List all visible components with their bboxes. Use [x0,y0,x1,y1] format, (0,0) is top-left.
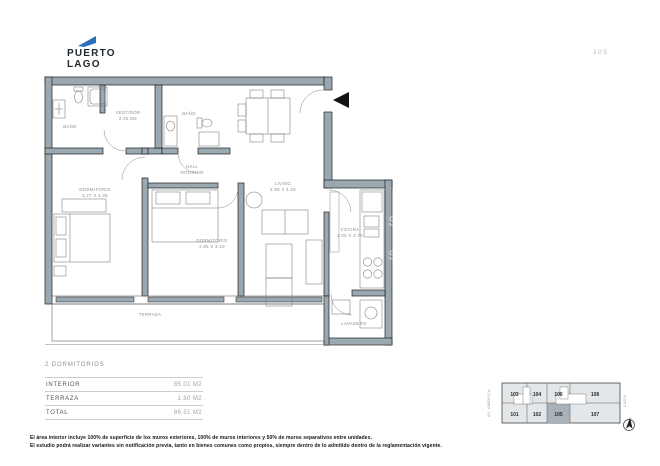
room-label-banio-1: BAÑO [63,124,77,129]
room-detail-dormitorio-1: 3.27 X 4.45 [82,193,108,198]
summary-value: 1.50 M2 [178,396,202,402]
summary-value: 86.51 M2 [174,410,202,416]
room-detail-living: 2.90 X 4.25 [270,187,296,192]
dining-table-icon [238,90,290,142]
svg-text:S: S [388,213,398,230]
room-label-hall: HALL [186,164,198,169]
keyplan-unit-106: 106 [554,392,563,398]
walls [45,77,392,345]
room-detail-hall: INTERIOR [180,170,203,175]
bed-icon-dorm2 [152,190,218,242]
door-swings [104,90,352,315]
room-label-terraza: TERRAZA [139,312,162,317]
summary-label: TOTAL [46,410,68,416]
area-summary: 2 DORMITORIOS INTERIOR 85.01 M2 TERRAZA … [45,362,203,420]
disclaimer-line1: El área interior incluye 100% de superfi… [30,434,642,442]
disclaimer: El área interior incluye 100% de superfi… [30,434,642,450]
thin-outlines [45,296,392,345]
furniture [53,87,384,328]
room-label-dormitorio-2: DORMITORIO [196,238,228,243]
keyplan-unit-105: 105 [554,412,563,418]
summary-label: TERRAZA [46,396,79,402]
keyplan-unit-102: 102 [533,412,542,418]
room-label-cocina: COCINA [341,227,360,232]
key-plan: 103 104 106 108 101 102 105 107 AV. AMÉR… [486,383,635,431]
toilet-icon [197,118,202,128]
summary-row-interior: INTERIOR 85.01 M2 [45,377,203,391]
summary-row-total: TOTAL 86.51 M2 [45,405,203,420]
keyplan-unit-101: 101 [510,412,519,418]
room-label-banio-2: BAÑO [182,111,196,116]
north-arrow-icon [624,418,635,431]
bed-icon-dorm1 [54,199,110,276]
room-detail-cocina: 2.00 X 3.70 [337,233,363,238]
room-detail-vestidor: 2.45 M2 [119,116,137,121]
summary-title: 2 DORMITORIOS [45,362,203,368]
summary-value: 85.01 M2 [174,382,202,388]
street-label-right: LAGO [623,395,627,407]
keyplan-unit-107: 107 [591,412,600,418]
room-label-living: LIVING [275,181,291,186]
room-detail-dormitorio-2: 2.85 X 3.10 [199,244,225,249]
keyplan-unit-103: 103 [510,392,519,398]
keyplan-unit-104: 104 [533,392,542,398]
summary-label: INTERIOR [46,382,80,388]
room-label-lavadero: LAVADERO [341,321,367,326]
kitchen-counter-icon [330,190,384,288]
room-labels: BAÑO VESTIDOR 2.45 M2 BAÑO HALL INTERIOR… [63,110,367,326]
room-label-vestidor: VESTIDOR [116,110,141,115]
entrance-arrow-icon [333,92,349,108]
floor-plan-page: PUERTO LAGO 105 [0,0,660,466]
terraza-outline [52,304,324,341]
bathtub-icon [199,132,219,146]
disclaimer-line2: El estudio podrá realizar variantes sin … [30,442,642,450]
room-label-dormitorio-1: DORMITORIO [79,187,111,192]
keyplan-unit-108: 108 [591,392,600,398]
toilet-icon [74,87,83,91]
sofa-icon [246,192,322,306]
summary-row-terraza: TERRAZA 1.50 M2 [45,391,203,405]
street-label-left: AV. AMÉRICA [486,389,491,417]
svg-text:S: S [388,247,398,264]
